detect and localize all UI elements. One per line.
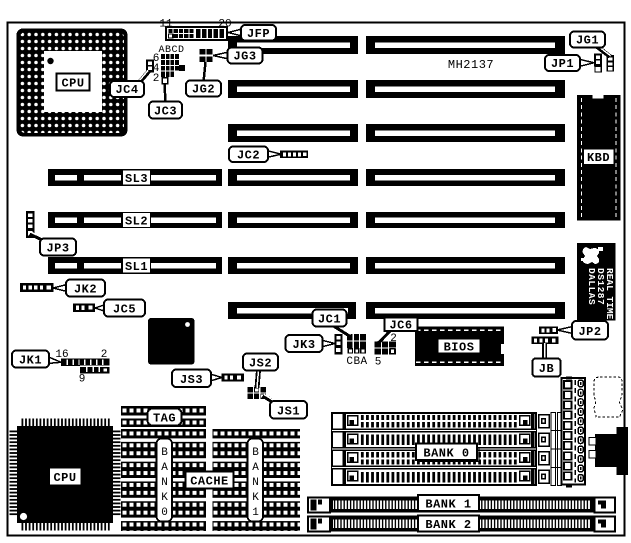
svg-text:JC3: JC3 (154, 105, 177, 119)
svg-text:SL2: SL2 (125, 215, 148, 229)
svg-text:N: N (252, 477, 259, 489)
svg-text:1: 1 (252, 507, 259, 519)
svg-text:JG1: JG1 (576, 34, 599, 48)
svg-text:KBD: KBD (587, 151, 610, 165)
svg-text:N: N (161, 477, 168, 489)
svg-text:CACHE: CACHE (190, 475, 229, 489)
svg-text:TAG: TAG (153, 412, 176, 426)
svg-text:CPU: CPU (53, 471, 76, 485)
svg-text:2: 2 (153, 73, 160, 85)
svg-text:A: A (252, 462, 259, 474)
svg-text:0: 0 (161, 507, 168, 519)
svg-text:JC1: JC1 (318, 313, 341, 327)
svg-text:JS3: JS3 (180, 373, 203, 387)
svg-text:JG3: JG3 (233, 50, 256, 64)
svg-text:JP1: JP1 (551, 57, 574, 71)
svg-text:9: 9 (79, 374, 86, 386)
svg-text:20: 20 (218, 19, 231, 31)
svg-text:JFP: JFP (247, 27, 270, 41)
svg-text:REAL TIME: REAL TIME (604, 268, 615, 320)
svg-text:JC2: JC2 (237, 149, 260, 163)
svg-text:JK3: JK3 (292, 338, 315, 352)
svg-text:A: A (161, 462, 168, 474)
svg-text:JP3: JP3 (46, 242, 69, 256)
svg-text:JK1: JK1 (19, 354, 42, 368)
svg-text:B: B (161, 447, 168, 459)
svg-text:SL1: SL1 (125, 260, 148, 274)
svg-text:JK2: JK2 (74, 283, 97, 297)
svg-text:MH2137: MH2137 (448, 58, 494, 72)
svg-text:JS1: JS1 (277, 405, 300, 419)
svg-text:5: 5 (375, 357, 382, 369)
svg-text:B: B (252, 447, 259, 459)
svg-text:CBA: CBA (346, 356, 367, 368)
svg-text:K: K (161, 492, 168, 504)
svg-text:K: K (252, 492, 259, 504)
svg-text:BANK 0: BANK 0 (423, 447, 469, 461)
svg-text:JG2: JG2 (192, 83, 215, 97)
svg-text:JS2: JS2 (249, 357, 272, 371)
svg-text:BIOS: BIOS (444, 341, 475, 355)
svg-text:11: 11 (159, 19, 173, 31)
svg-text:SL3: SL3 (125, 172, 148, 186)
svg-text:BANK 1: BANK 1 (425, 498, 471, 512)
svg-text:BANK 2: BANK 2 (425, 518, 471, 532)
svg-text:JP2: JP2 (578, 325, 601, 339)
svg-text:JC5: JC5 (113, 303, 136, 317)
svg-text:JB: JB (539, 362, 554, 376)
svg-text:JC4: JC4 (115, 83, 138, 97)
svg-text:CPU: CPU (61, 77, 84, 91)
svg-text:JC6: JC6 (389, 319, 412, 333)
